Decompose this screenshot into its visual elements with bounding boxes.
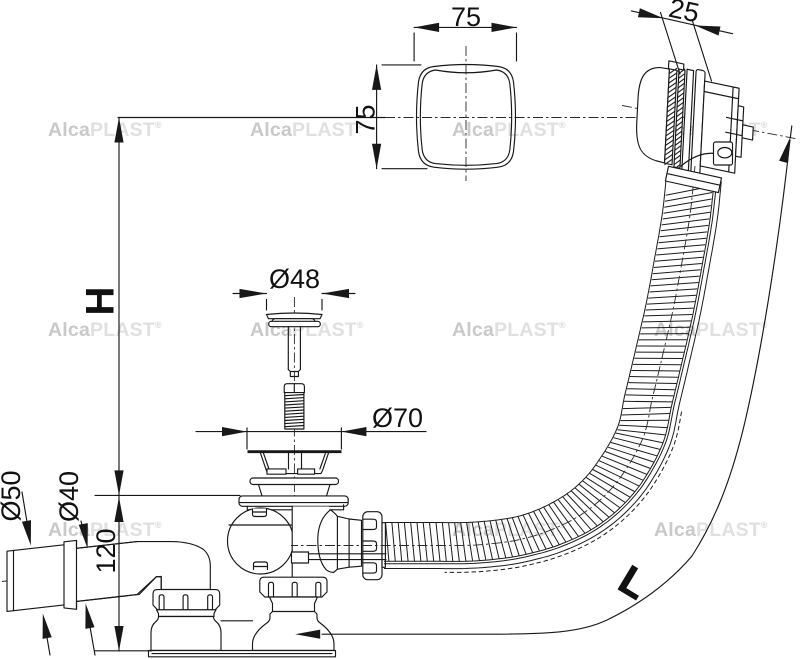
svg-text:AlcaPLAST®: AlcaPLAST®: [48, 319, 162, 341]
svg-text:AlcaPLAST®: AlcaPLAST®: [452, 319, 566, 341]
svg-text:AlcaPLAST®: AlcaPLAST®: [250, 119, 364, 141]
svg-text:AlcaPLAST®: AlcaPLAST®: [654, 319, 768, 341]
svg-text:25: 25: [666, 0, 702, 28]
svg-text:AlcaPLAST®: AlcaPLAST®: [452, 119, 566, 141]
svg-text:L: L: [611, 558, 655, 608]
svg-text:120: 120: [91, 528, 121, 573]
svg-text:75: 75: [451, 2, 481, 32]
svg-text:Ø48: Ø48: [269, 264, 320, 294]
svg-text:Ø70: Ø70: [372, 403, 423, 433]
svg-text:AlcaPLAST®: AlcaPLAST®: [48, 119, 162, 141]
svg-text:75: 75: [351, 104, 381, 134]
svg-text:H: H: [79, 287, 123, 316]
svg-text:Ø40: Ø40: [54, 471, 84, 522]
